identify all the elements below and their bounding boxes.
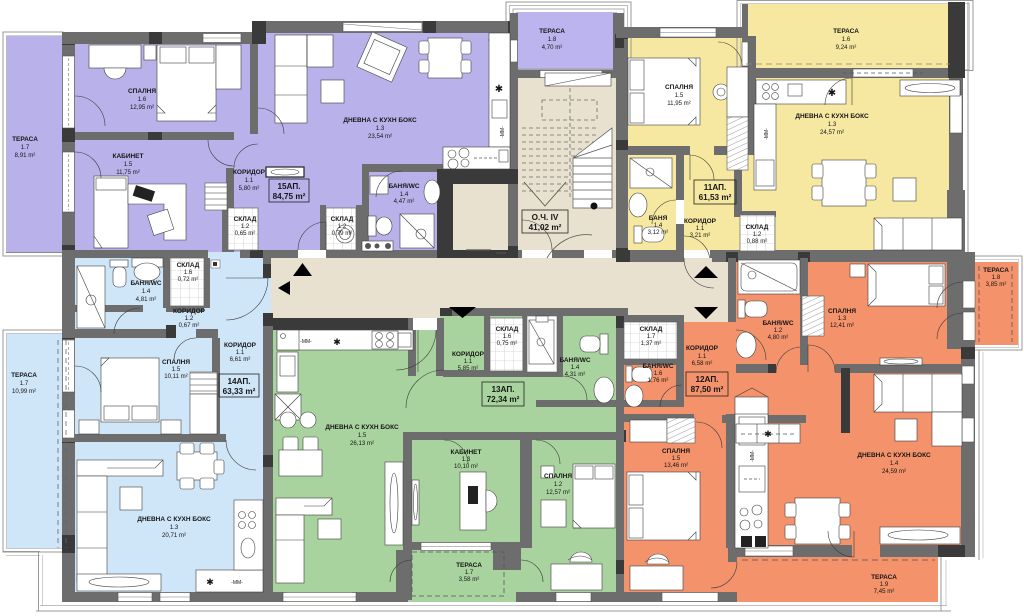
svg-text:1.1: 1.1 — [236, 349, 245, 356]
svg-text:3,12 m²: 3,12 m² — [648, 229, 669, 236]
svg-text:1.4: 1.4 — [654, 222, 663, 229]
svg-text:63,33 m²: 63,33 m² — [223, 387, 256, 396]
svg-text:1.2: 1.2 — [774, 327, 783, 334]
svg-text:4,70 m²: 4,70 m² — [542, 44, 563, 51]
svg-text:БАНЯ/WC: БАНЯ/WC — [642, 363, 673, 370]
svg-text:12,57 m²: 12,57 m² — [546, 489, 570, 496]
svg-text:1.2: 1.2 — [241, 223, 250, 230]
svg-text:СПАЛНЯ: СПАЛНЯ — [162, 359, 190, 366]
svg-text:1.5: 1.5 — [672, 455, 681, 462]
svg-text:0,79 m²: 0,79 m² — [332, 230, 353, 237]
svg-text:1.7: 1.7 — [21, 144, 30, 151]
svg-text:1.3: 1.3 — [838, 315, 847, 322]
svg-text:КОРИДОР: КОРИДОР — [233, 169, 266, 176]
svg-text:1.3: 1.3 — [828, 121, 837, 128]
svg-text:1.2: 1.2 — [753, 231, 762, 238]
svg-text:ДНЕВНА С КУХН БОКС: ДНЕВНА С КУХН БОКС — [137, 516, 211, 523]
svg-text:0,67 m²: 0,67 m² — [179, 322, 200, 329]
svg-text:20,71 m²: 20,71 m² — [162, 532, 186, 539]
svg-text:5,80 m²: 5,80 m² — [239, 185, 260, 192]
svg-text:БАНЯ/WC: БАНЯ/WC — [559, 357, 590, 364]
svg-text:6,58 m²: 6,58 m² — [692, 360, 713, 367]
svg-text:87,50 m²: 87,50 m² — [691, 385, 724, 394]
svg-text:✱: ✱ — [828, 88, 836, 99]
svg-text:СПАЛНЯ: СПАЛНЯ — [128, 88, 156, 95]
svg-text:ТЕРАСА: ТЕРАСА — [12, 136, 38, 143]
svg-text:СКЛАД: СКЛАД — [746, 224, 769, 231]
svg-text:4,81 m²: 4,81 m² — [136, 296, 157, 303]
svg-text:СКЛАД: СКЛАД — [234, 216, 257, 223]
svg-text:1.3: 1.3 — [376, 125, 385, 132]
svg-text:14АП.: 14АП. — [227, 377, 250, 386]
svg-text:9,24 m²: 9,24 m² — [836, 44, 857, 51]
svg-text:13АП.: 13АП. — [491, 385, 514, 394]
svg-text:1.3: 1.3 — [170, 524, 179, 531]
svg-text:3,21 m²: 3,21 m² — [690, 232, 711, 239]
svg-text:1.5: 1.5 — [358, 432, 367, 439]
svg-text:3,58 m²: 3,58 m² — [459, 576, 480, 583]
svg-text:1.6: 1.6 — [842, 36, 851, 43]
svg-text:23,54 m²: 23,54 m² — [368, 133, 392, 140]
svg-text:1.7: 1.7 — [20, 380, 29, 387]
svg-text:5,85 m²: 5,85 m² — [458, 365, 479, 372]
svg-text:СКЛАД: СКЛАД — [640, 326, 663, 333]
svg-text:СПАЛНЯ: СПАЛНЯ — [662, 448, 690, 455]
svg-text:-MM-: -MM- — [750, 450, 756, 462]
svg-text:1.7: 1.7 — [465, 569, 474, 576]
svg-text:1,37 m²: 1,37 m² — [641, 340, 662, 347]
svg-text:1.4: 1.4 — [890, 460, 899, 467]
svg-text:1.8: 1.8 — [992, 274, 1001, 281]
svg-text:0,65 m²: 0,65 m² — [235, 230, 256, 237]
svg-text:1.4: 1.4 — [400, 191, 409, 198]
svg-text:24,57 m²: 24,57 m² — [820, 129, 844, 136]
svg-text:4,31 m²: 4,31 m² — [565, 371, 586, 378]
svg-text:-MM-: -MM- — [500, 126, 506, 138]
svg-text:-MM-: -MM- — [231, 580, 243, 586]
svg-text:1.9: 1.9 — [880, 581, 889, 588]
svg-text:11,95 m²: 11,95 m² — [667, 100, 691, 107]
svg-text:СПАЛНЯ: СПАЛНЯ — [828, 308, 856, 315]
svg-text:12АП.: 12АП. — [695, 375, 718, 384]
svg-text:СКЛАД: СКЛАД — [496, 326, 519, 333]
svg-text:БАНЯ/WC: БАНЯ/WC — [130, 280, 161, 287]
svg-text:ТЕРАСА: ТЕРАСА — [456, 562, 482, 569]
svg-text:КОРИДОР: КОРИДОР — [684, 218, 717, 225]
svg-text:БАНЯ: БАНЯ — [649, 215, 668, 222]
svg-text:11АП.: 11АП. — [704, 183, 727, 192]
svg-text:10,10 m²: 10,10 m² — [454, 463, 478, 470]
svg-text:10,99 m²: 10,99 m² — [12, 388, 36, 395]
svg-text:72,34 m²: 72,34 m² — [487, 395, 520, 404]
svg-text:26,13 m²: 26,13 m² — [350, 440, 374, 447]
svg-text:1.4: 1.4 — [142, 288, 151, 295]
svg-text:КАБИНЕТ: КАБИНЕТ — [112, 153, 143, 160]
svg-text:0,88 m²: 0,88 m² — [747, 238, 768, 245]
svg-text:1.7: 1.7 — [647, 333, 656, 340]
svg-text:24,59 m²: 24,59 m² — [882, 468, 906, 475]
svg-text:15АП.: 15АП. — [277, 182, 300, 191]
svg-text:✱: ✱ — [206, 577, 214, 587]
svg-text:0,75 m²: 0,75 m² — [497, 340, 518, 347]
svg-text:1.2: 1.2 — [185, 315, 194, 322]
svg-text:КОРИДОР: КОРИДОР — [686, 345, 719, 352]
svg-text:БАНЯ/WC: БАНЯ/WC — [762, 320, 793, 327]
svg-text:1.6: 1.6 — [503, 333, 512, 340]
svg-text:0,72 m²: 0,72 m² — [178, 276, 199, 283]
svg-text:ТЕРАСА: ТЕРАСА — [833, 28, 859, 35]
svg-text:КОРИДОР: КОРИДОР — [224, 342, 257, 349]
svg-text:1.4: 1.4 — [571, 364, 580, 371]
svg-text:ТЕРАСА: ТЕРАСА — [11, 372, 37, 379]
svg-text:✱: ✱ — [333, 337, 341, 347]
svg-text:ДНЕВНА С КУХН БОКС: ДНЕВНА С КУХН БОКС — [325, 424, 399, 431]
svg-text:6,61 m²: 6,61 m² — [230, 356, 251, 363]
svg-text:1.6: 1.6 — [138, 96, 147, 103]
svg-text:1.2: 1.2 — [338, 223, 347, 230]
svg-text:БАНЯ/WC: БАНЯ/WC — [388, 183, 419, 190]
svg-text:ТЕРАСА: ТЕРАСА — [871, 574, 897, 581]
svg-text:1.8: 1.8 — [548, 36, 557, 43]
svg-text:12,95 m²: 12,95 m² — [130, 104, 154, 111]
svg-text:1.5: 1.5 — [124, 161, 133, 168]
svg-text:КАБИНЕТ: КАБИНЕТ — [450, 449, 481, 456]
svg-text:11,75 m²: 11,75 m² — [116, 169, 140, 176]
svg-text:3,85 m²: 3,85 m² — [986, 281, 1007, 288]
svg-text:-MM-: -MM- — [300, 339, 312, 345]
svg-text:СПАЛНЯ: СПАЛНЯ — [665, 84, 693, 91]
svg-text:12,41 m²: 12,41 m² — [830, 322, 854, 329]
svg-text:-MM-: -MM- — [764, 128, 770, 140]
svg-text:1.5: 1.5 — [172, 366, 181, 373]
svg-text:СКЛАД: СКЛАД — [331, 216, 354, 223]
svg-text:ТЕРАСА: ТЕРАСА — [983, 267, 1009, 274]
svg-text:ДНЕВНА С КУХН БОКС: ДНЕВНА С КУХН БОКС — [343, 117, 417, 124]
svg-text:О.Ч. IV: О.Ч. IV — [532, 213, 559, 222]
svg-text:1.5: 1.5 — [675, 92, 684, 99]
svg-text:61,53 m²: 61,53 m² — [699, 193, 732, 202]
svg-text:13,46 m²: 13,46 m² — [664, 462, 688, 469]
svg-text:1.1: 1.1 — [698, 353, 707, 360]
svg-text:СКЛАД: СКЛАД — [177, 262, 200, 269]
svg-text:✱: ✱ — [764, 429, 772, 439]
svg-text:1.6: 1.6 — [654, 370, 663, 377]
svg-text:7,45 m²: 7,45 m² — [874, 588, 895, 595]
svg-text:СПАЛНЯ: СПАЛНЯ — [544, 473, 572, 480]
svg-text:1,76 m²: 1,76 m² — [648, 377, 669, 384]
svg-text:ДНЕВНА С КУХН БОКС: ДНЕВНА С КУХН БОКС — [795, 113, 869, 120]
svg-text:ТЕРАСА: ТЕРАСА — [539, 28, 565, 35]
svg-text:8,91 m²: 8,91 m² — [15, 152, 36, 159]
svg-text:1.3: 1.3 — [462, 456, 471, 463]
svg-text:ДНЕВНА С КУХН БОКС: ДНЕВНА С КУХН БОКС — [857, 452, 931, 459]
svg-text:✱: ✱ — [495, 84, 503, 95]
svg-text:1.1: 1.1 — [696, 225, 705, 232]
svg-text:КОРИДОР: КОРИДОР — [173, 308, 206, 315]
svg-text:4,47 m²: 4,47 m² — [394, 198, 415, 205]
svg-text:КОРИДОР: КОРИДОР — [452, 351, 485, 358]
svg-text:84,75 m²: 84,75 m² — [273, 192, 306, 201]
svg-text:1.1: 1.1 — [464, 358, 473, 365]
svg-text:41,02 m²: 41,02 m² — [529, 223, 562, 232]
svg-text:4,80 m²: 4,80 m² — [768, 334, 789, 341]
svg-text:10,11 m²: 10,11 m² — [164, 373, 188, 380]
svg-text:1.1: 1.1 — [245, 177, 254, 184]
svg-text:1.6: 1.6 — [184, 269, 193, 276]
svg-text:1.2: 1.2 — [554, 481, 563, 488]
